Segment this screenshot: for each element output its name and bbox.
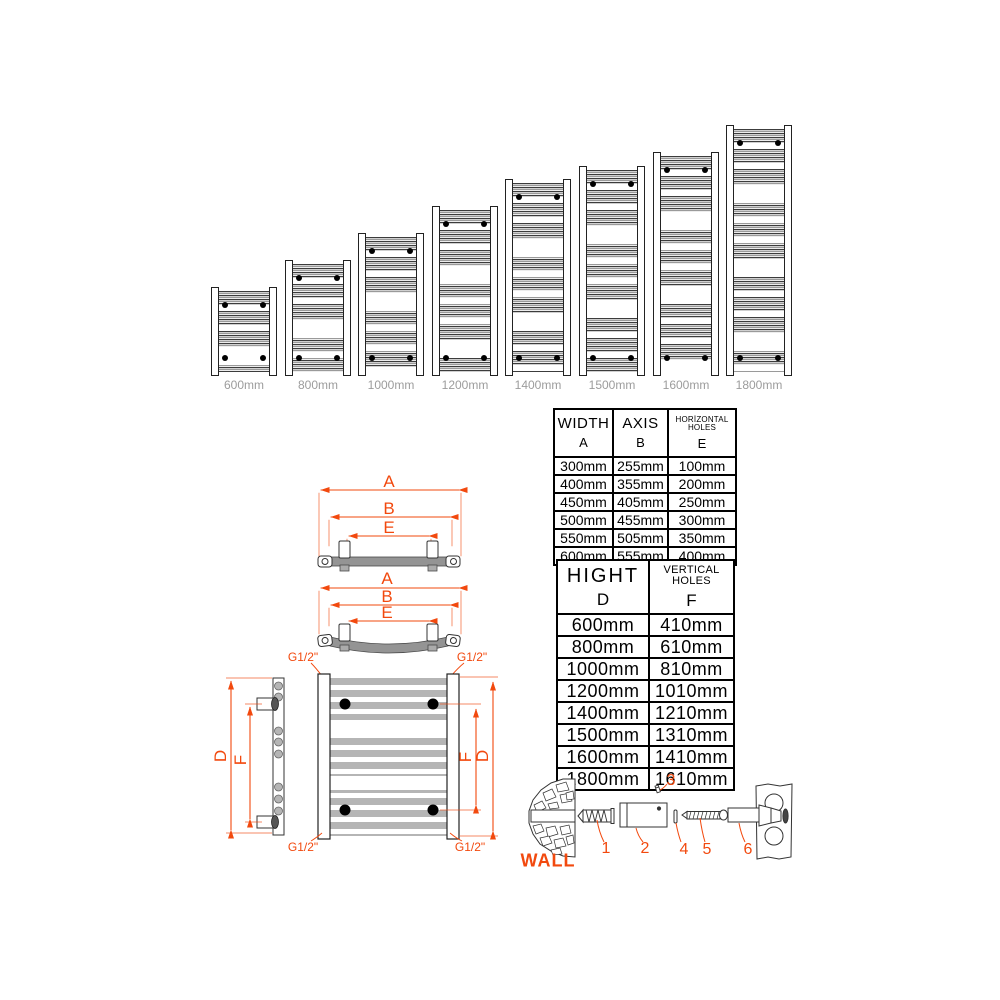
part-number-6: 6 xyxy=(744,841,753,859)
part-number-2: 2 xyxy=(641,840,650,858)
part-number-4: 4 xyxy=(680,841,689,859)
thread-label-g12: G1/2" xyxy=(457,650,487,664)
dim-label-e: E xyxy=(383,518,394,538)
part-number-1: 1 xyxy=(602,840,611,858)
thread-label-g12: G1/2" xyxy=(455,840,485,854)
diagram-linework xyxy=(0,0,1000,1000)
thread-label-g12: G1/2" xyxy=(288,840,318,854)
spec-sheet: 600mm 800mm 1000mm 1200mm 1400mm xyxy=(0,0,1000,1000)
bracket-stem xyxy=(728,784,792,859)
thread-label-g12: G1/2" xyxy=(288,650,318,664)
grub-screw xyxy=(655,785,660,793)
bracket-sleeve xyxy=(620,803,667,827)
dim-label-e: E xyxy=(381,603,392,623)
dim-label-b: B xyxy=(383,499,394,519)
mounting-hardware xyxy=(529,779,792,859)
wall-label: WALL xyxy=(521,851,576,872)
thread-leaders-top xyxy=(311,663,464,676)
dim-label-d: D xyxy=(211,750,231,762)
thread-leaders-bottom xyxy=(311,833,462,841)
fixing-screw xyxy=(682,810,728,820)
dim-label-d: D xyxy=(473,750,493,762)
dim-label-f: F xyxy=(231,755,251,765)
wall-plug xyxy=(578,809,614,824)
dim-label-a: A xyxy=(381,569,392,589)
locking-pin xyxy=(674,810,677,823)
part-number-3: 3 xyxy=(667,772,676,790)
wall-section xyxy=(529,779,575,857)
part-number-5: 5 xyxy=(703,841,712,859)
dim-label-a: A xyxy=(383,472,394,492)
